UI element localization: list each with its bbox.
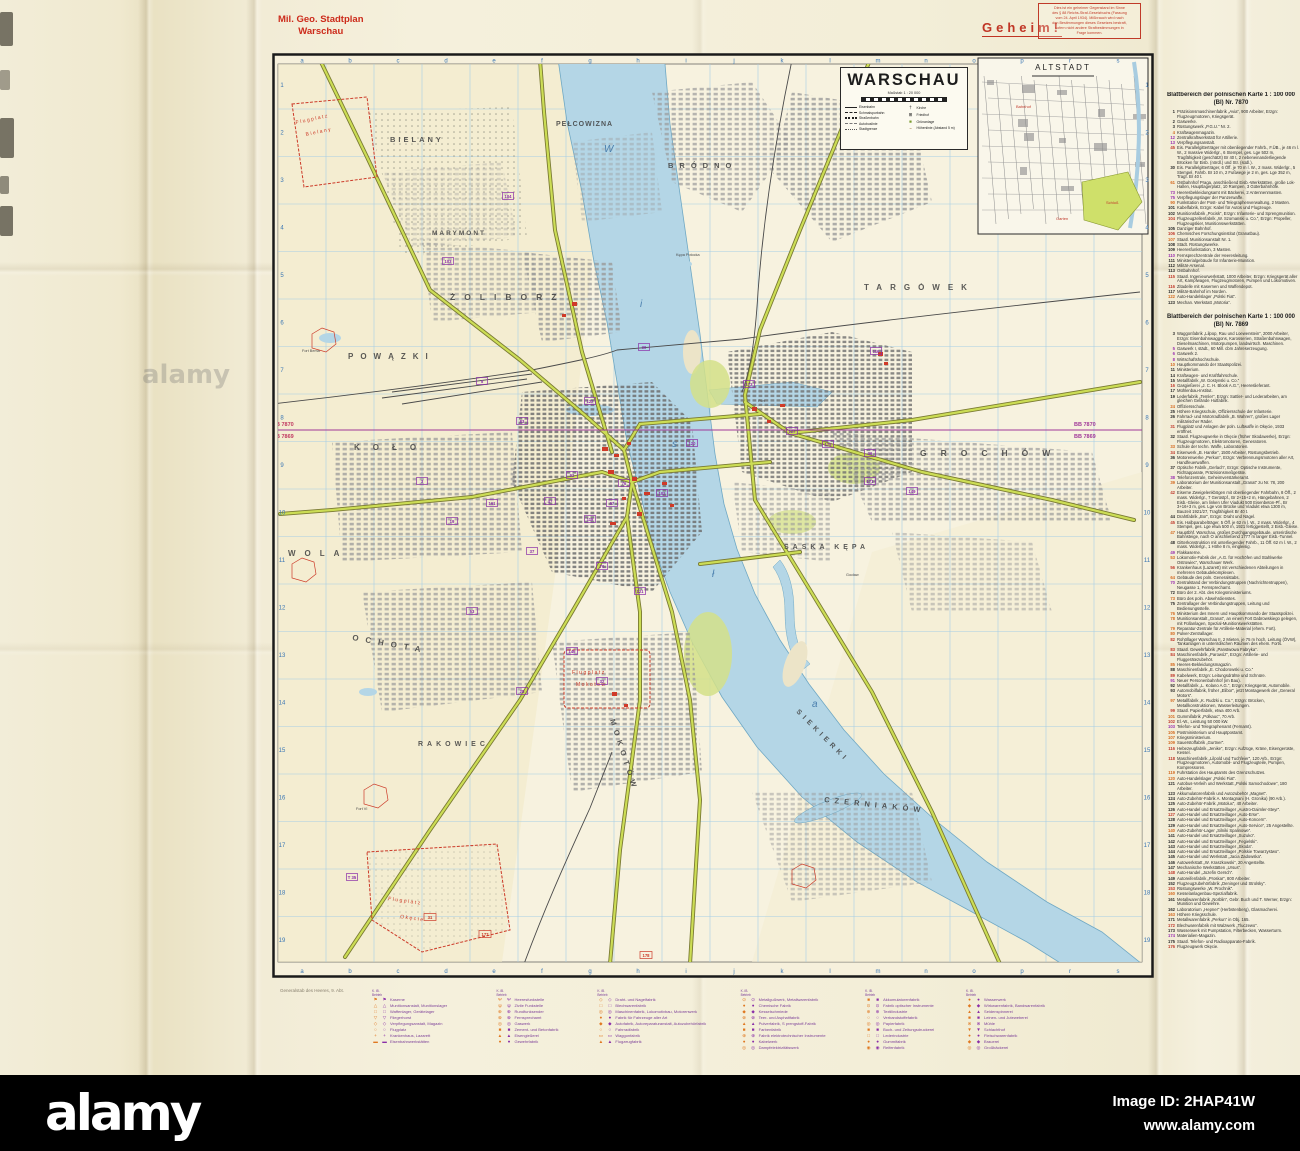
object-marker-number: 161 <box>489 501 497 506</box>
object-marker-number: 175 <box>825 442 833 447</box>
index-entry: 93Automobilfabrik, früher „Elibor“, jetz… <box>1163 689 1299 698</box>
symbol-icon-orange: ■ <box>496 1028 503 1033</box>
index-entry: 161Metallwarenfabrik „Norblin“, Gebr. Bu… <box>1163 898 1299 907</box>
symbol-legend-row: ◎◎Papierfabrik <box>865 1022 959 1027</box>
symbol-label: Lederindustrie <box>883 1034 908 1038</box>
symbol-icon-orange: ● <box>865 1040 872 1045</box>
tram-line-symbol <box>845 117 857 119</box>
svg-text:l: l <box>829 969 830 975</box>
symbol-icon-orange: ◎ <box>741 1046 748 1051</box>
svg-text:14: 14 <box>1144 701 1151 707</box>
svg-text:s: s <box>1117 59 1120 65</box>
symbol-icon-orange: ◇ <box>372 1022 379 1027</box>
symbol-icon-orange: ◎ <box>865 1022 872 1027</box>
object-marker-number: 47 <box>548 499 553 504</box>
park <box>690 360 730 408</box>
index-entry: 26Fahrrad- und Motorradfabrik „B. Wahren… <box>1163 415 1299 424</box>
index-entry-text: Mechan. Werkstatt „Motoria“. <box>1177 301 1299 306</box>
symbol-label: Gewehrfabrik <box>514 1040 538 1044</box>
symbol-legend-row: ◎◎Dampfelektrizitätswerk <box>741 1046 858 1051</box>
legend-label: Kirche <box>917 106 927 110</box>
svg-text:15: 15 <box>279 748 286 754</box>
place-label: Port <box>758 399 766 403</box>
legend-column-header: K. iB.Betrieb <box>496 990 590 997</box>
legend-label: Schmalspurbahn <box>859 111 884 115</box>
symbol-label: Munitionsanstalt, Munitionslager <box>390 1004 447 1008</box>
alamy-url[interactable]: www.alamy.com <box>1112 1118 1255 1134</box>
index-entry-number: 36 <box>1163 456 1177 465</box>
index-entry-text: Flugplatz und Anlagen der poln. Luftwaff… <box>1177 425 1299 434</box>
index-entry-number: 48 <box>1163 541 1177 550</box>
symbol-icon-purple: ⊙ <box>750 998 757 1003</box>
inset-title: ALTSTADT <box>1035 63 1091 72</box>
symbol-legend-row: ⊗⊗Teer- und Asphaltfabrik <box>741 1016 858 1021</box>
symbol-icon-purple: ⊕ <box>874 1010 881 1015</box>
object-marker-number: 32 <box>600 679 605 684</box>
object-marker-number: 97 <box>610 501 615 506</box>
legend-row: Straßenbahn <box>845 116 902 120</box>
svg-text:17: 17 <box>279 843 286 849</box>
symbol-icon-orange: ■ <box>741 1028 748 1033</box>
scanned-map-page: alamy alamy alamy alamy alamy Mil. Geo. … <box>0 0 1300 1151</box>
svg-text:10: 10 <box>279 511 286 517</box>
inset-red-label: Bahnhof <box>1016 104 1032 109</box>
index-entry: 78Munitionsanstalt „Granat“, an einem Fo… <box>1163 617 1299 626</box>
index-entry-number: 30 <box>1163 166 1177 180</box>
contour-icon: ~ <box>907 126 915 131</box>
map-frame: BIELANYPEŁCOWIZNABRÓDNOMARYMONTŻOLIBORZT… <box>272 52 1156 980</box>
symbol-icon-purple: ⚑ <box>381 998 388 1003</box>
symbol-legend-row: ◉◉Reifenfabrik <box>865 1046 959 1051</box>
symbol-icon-orange: ◆ <box>966 1040 973 1045</box>
place-label: Fort VI <box>356 807 367 811</box>
symbol-icon-orange: ⊗ <box>966 1022 973 1027</box>
symbol-icon-orange: ● <box>966 998 973 1003</box>
symbol-icon-purple: ◎ <box>874 1022 881 1027</box>
map-scale: Maßstab 1 : 20 000 <box>845 91 963 95</box>
symbol-legend-row: △△Munitionsanstalt, Munitionslager <box>372 1004 489 1009</box>
symbol-icon-orange: ■ <box>865 1028 872 1033</box>
scan-artifact <box>0 118 14 158</box>
symbol-icon-orange: ◆ <box>741 1010 748 1015</box>
symbol-legend-row: ●●Chemische Fabrik <box>741 1004 858 1009</box>
symbol-label: Schlachthof <box>984 1028 1005 1032</box>
legend-label: Eisenbahn <box>859 105 875 109</box>
mil-geo-stamp: Mil. Geo. Stadtplan Warschau <box>278 14 364 38</box>
scale-bar <box>861 97 947 102</box>
river-name-letter: a <box>812 699 818 710</box>
symbol-legend-row: ■■Zement- und Betonfabrik <box>496 1028 590 1033</box>
border-line-symbol <box>845 129 857 130</box>
symbol-legend-row: ◎◎Großbäckerei <box>966 1046 1060 1051</box>
svg-text:m: m <box>876 969 881 975</box>
symbol-label: Buch- und Zeitungsdruckerei <box>883 1028 934 1032</box>
index-entry-number: 45 <box>1163 146 1177 165</box>
object-marker-number: 83 <box>520 419 525 424</box>
legend-label: Straßenbahn <box>859 116 879 120</box>
symbol-icon-orange: ◇ <box>597 998 604 1003</box>
svg-text:g: g <box>588 59 591 65</box>
symbol-icon-purple: ⊗ <box>505 1016 512 1021</box>
scan-artifact <box>0 206 13 236</box>
svg-text:12: 12 <box>1144 606 1151 612</box>
legend-row: ■Grünanlage <box>907 119 964 124</box>
district-label: TARGÓWEK <box>864 283 975 292</box>
index-entry-text: Waggonfabrik „Lilpop, Rau und Loewenstei… <box>1177 332 1299 346</box>
index-entry-text: Eis. Halbparabelträger, 5 Öff. je 62 m l… <box>1177 521 1299 530</box>
symbol-legend-row: ■■Farbenfabrik <box>741 1028 858 1033</box>
stamp-line2: Warschau <box>278 26 364 38</box>
index-entry-text: Motorenwerke „Perkun“, Erzgn: Verbrennun… <box>1177 456 1299 465</box>
symbol-icon-orange: + <box>372 1034 379 1039</box>
index-section-header: Blattbereich der polnischen Karte 1 : 10… <box>1163 92 1299 107</box>
index-entry: 56Krankenhaus (Lazarett) mit verschieden… <box>1163 566 1299 575</box>
symbol-legend-row: ○○Fahrradfabrik <box>597 1028 733 1033</box>
scan-artifact <box>0 12 13 46</box>
symbol-label: Verbandstoffefabrik <box>883 1016 917 1020</box>
index-entry: 118Maschinenfabrik „Lilpold und Tuchfeie… <box>1163 757 1299 771</box>
object-marker-number: 146 <box>569 649 577 654</box>
symbol-legend-row: ▲▲Flugzeugfabrik <box>597 1040 733 1045</box>
symbol-icon-purple: ◎ <box>505 1022 512 1027</box>
legend-column-header: K. iB.Betrieb <box>966 990 1060 997</box>
object-marker-number: 116 <box>873 349 880 354</box>
legend-row: ~Höhenlinie (Abstand 5 m) <box>907 126 964 131</box>
symbol-label: Fabrik optischer Instrumente <box>883 1004 934 1008</box>
stamp-line1: Mil. Geo. Stadtplan <box>278 14 364 26</box>
symbol-legend-row: ●●Fabrik für Fahrzeuge aller Art <box>597 1016 733 1021</box>
fold-crease <box>138 0 154 1075</box>
symbol-label: Fernsprechamt <box>514 1016 541 1020</box>
symbol-icon-purple: ψ <box>505 1004 512 1009</box>
svg-text:18: 18 <box>279 891 286 897</box>
symbol-icon-orange: ◎ <box>597 1010 604 1015</box>
river-name-letter: W <box>604 144 615 155</box>
index-entry: 48Gitterkonstruktion mit unterliegender … <box>1163 541 1299 550</box>
symbol-label: Fliegerhorst <box>390 1016 411 1020</box>
symbol-icon-purple: ▲ <box>606 1040 613 1045</box>
object-marker-number: 120 <box>689 441 697 446</box>
index-entry: 115Staatl. Ingenieurwerkstatt, 1000 Arbe… <box>1163 275 1299 284</box>
symbol-icon-orange: ● <box>597 1016 604 1021</box>
district-label: MARYMONT <box>432 230 486 237</box>
symbol-label: Gaswerk <box>514 1022 530 1026</box>
symbol-icon-purple: ● <box>750 1004 757 1009</box>
index-entry-text: Optische Fabrik „Gerlach“, Erzgn: Optisc… <box>1177 466 1299 475</box>
index-entry-text: Rohöllager Warschau II, 2 Mieten, je 75 … <box>1177 638 1299 647</box>
symbol-icon-purple: ○ <box>381 1028 388 1033</box>
urban-marymont <box>422 242 542 322</box>
symbol-icon-purple: Ψ <box>505 998 512 1003</box>
svg-text:g: g <box>588 969 591 975</box>
symbol-label: Kabelwerk <box>759 1040 778 1044</box>
symbol-label: Pulverfabrik, S prengstoff-Fabrik <box>759 1022 816 1026</box>
symbol-icon-purple: ◆ <box>750 1010 757 1015</box>
symbol-legend-row: ■■Buch- und Zeitungsdruckerei <box>865 1028 959 1033</box>
sheet-number-label: BB 7870 <box>1074 422 1096 428</box>
index-entry-text: Metallwarenfabrik „Norblin“, Gebr. Buch … <box>1177 898 1299 907</box>
index-entry-number: 26 <box>1163 415 1177 424</box>
index-entry-number: 82 <box>1163 638 1177 647</box>
symbol-legend-column: K. iB.BetriebΨΨHeeresfunkstelleψψZivile … <box>496 990 590 1052</box>
svg-text:16: 16 <box>279 796 286 802</box>
index-entry: 82Rohöllager Warschau II, 2 Mieten, je 7… <box>1163 638 1299 647</box>
index-entry-number: 42 <box>1163 491 1177 515</box>
city-map: BIELANYPEŁCOWIZNABRÓDNOMARYMONTŻOLIBORZT… <box>272 52 1156 980</box>
index-entry-number: 37 <box>1163 466 1177 475</box>
symbol-icon-orange: □ <box>865 1034 872 1039</box>
symbol-legend-row: ○○Verbandstoffefabrik <box>865 1016 959 1021</box>
index-entry-number: 47 <box>1163 531 1177 540</box>
index-entry-number: 32 <box>1163 435 1177 444</box>
symbol-legend-row: ▽▽Fliegerhorst <box>372 1016 489 1021</box>
index-entry-text: Hebezeugfabrik „Jenike“, Erzgn: Aufzüge,… <box>1177 747 1299 756</box>
svg-text:15: 15 <box>1144 748 1151 754</box>
district-label: BIELANY <box>390 135 444 144</box>
object-marker-number: 104 <box>505 194 513 199</box>
symbol-icon-orange: ⊙ <box>741 998 748 1003</box>
symbol-icon-purple: ⊕ <box>505 1010 512 1015</box>
index-entry-text: Staatl. Flugzeugwerke in Okęcie (früher … <box>1177 435 1299 444</box>
svg-text:18: 18 <box>1144 891 1151 897</box>
svg-text:d: d <box>444 59 447 65</box>
district-label: POWĄZKI <box>348 352 435 361</box>
legend-label: Höhenlinie (Abstand 5 m) <box>917 126 955 130</box>
index-entry-number: 97 <box>1163 699 1177 708</box>
symbol-icon-orange: ◆ <box>597 1022 604 1027</box>
svg-text:19: 19 <box>1144 938 1151 944</box>
airfield-label: Flugplatz <box>572 670 606 676</box>
object-marker-number: 70 <box>600 564 605 569</box>
svg-text:i: i <box>685 969 686 975</box>
symbol-icon-purple: △ <box>381 1004 388 1009</box>
index-entry-number: 1 <box>1163 110 1177 119</box>
symbol-legend-row: ΨΨHeeresfunkstelle <box>496 998 590 1003</box>
index-entry-text: Flugzeugwerk Okęcie. <box>1177 945 1299 950</box>
index-entry-text: Hauptbhf. Warschau, großes Durchgangsgeb… <box>1177 531 1299 540</box>
symbol-icon-orange: ▬ <box>372 1040 379 1045</box>
place-label: Fort Bema <box>302 349 321 353</box>
symbol-label: Teer- und Asphaltfabrik <box>759 1016 800 1020</box>
symbol-icon-orange: ⊙ <box>865 1004 872 1009</box>
object-marker-number: 171 <box>867 479 875 484</box>
svg-text:s: s <box>1117 969 1120 975</box>
district-label: WOLA <box>288 549 348 558</box>
index-entry-text: Flugzeugzellenfabrik „W. Szomanski u. Co… <box>1177 217 1299 226</box>
symbol-icon-purple: ■ <box>505 1028 512 1033</box>
symbol-icon-orange: ψ <box>496 1004 503 1009</box>
svg-text:i: i <box>685 59 686 65</box>
legend-column-header: K. iB.Betrieb <box>372 990 489 997</box>
symbol-legend-row: □□Lederindustrie <box>865 1034 959 1039</box>
symbol-legend-row: ◆◆Brauerei <box>966 1040 1060 1045</box>
symbol-legend-row: ◆◆Kesselschmiede <box>741 1010 858 1015</box>
symbol-icon-purple: ■ <box>874 998 881 1003</box>
index-entry: 47Hauptbhf. Warschau, großes Durchgangsg… <box>1163 531 1299 540</box>
svg-text:13: 13 <box>1144 653 1151 659</box>
index-entry-text: Ostbahnhof Praga, anschließend Eisb.-Wer… <box>1177 181 1299 190</box>
symbol-icon-purple: ■ <box>874 1028 881 1033</box>
narrow-line-symbol <box>845 112 857 113</box>
object-marker-number: 127 <box>789 429 797 434</box>
index-entry-number: 118 <box>1163 757 1177 771</box>
title-legend-left: EisenbahnSchmalspurbahnStraßenbahnAutobu… <box>845 105 902 133</box>
symbol-icon-purple: + <box>381 1034 388 1039</box>
symbol-icon-purple: ◎ <box>975 1046 982 1051</box>
symbol-icon-orange: ▲ <box>741 1022 748 1027</box>
symbol-icon-purple: □ <box>381 1010 388 1015</box>
inset-red-label: Schloß <box>1106 200 1119 205</box>
svg-text:13: 13 <box>279 653 286 659</box>
district-label: ŻOLIBORZ <box>450 292 565 302</box>
symbol-label: Chemische Fabrik <box>759 1004 791 1008</box>
object-marker-number: 121 <box>637 589 645 594</box>
symbol-legend: K. iB.Betrieb⚑⚑Kaserne△△Munitionsanstalt… <box>372 990 1060 1052</box>
symbol-icon-orange: ■ <box>966 1016 973 1021</box>
index-entry-text: Eis. Parallelgitterträger, 6 Öff. je 70 … <box>1177 166 1299 180</box>
index-entry: 42Eiserne Zweigelenkbögen mit obenliegen… <box>1163 491 1299 515</box>
district-label: BRÓDNO <box>668 161 737 170</box>
symbol-label: Seidenspinnerei <box>984 1010 1013 1014</box>
symbol-label: Wirkwarenfabrik, Bandwarenfabrik <box>984 1004 1045 1008</box>
symbol-label: Maschinenfabrik, Lokomotivbau, Motorenwe… <box>615 1010 697 1014</box>
object-marker-number: 53 <box>470 609 475 614</box>
symbol-label: Gummifabrik <box>883 1040 906 1044</box>
symbol-icon-purple: ● <box>606 1016 613 1021</box>
svg-text:d: d <box>444 969 447 975</box>
scan-artifact <box>0 176 9 194</box>
index-section-header: Blattbereich der polnischen Karte 1 : 10… <box>1163 314 1299 329</box>
legend-row: Autobuslinie <box>845 122 902 126</box>
index-entry: 30Eis. Parallelgitterträger, 6 Öff. je 7… <box>1163 166 1299 180</box>
index-entry-number: 176 <box>1163 945 1177 950</box>
symbol-legend-row: ◎◎Gaswerk <box>496 1022 590 1027</box>
symbol-legend-row: □□Blechwarenfabrik <box>597 1004 733 1009</box>
symbol-label: Waffenlager, Gerätelager <box>390 1010 434 1014</box>
symbol-label: Kaserne <box>390 998 405 1002</box>
index-entry-text: Fahrrad- und Motorradfabrik „B. Wahren“,… <box>1177 415 1299 424</box>
symbol-icon-purple: ● <box>750 1040 757 1045</box>
altstadt-inset: ALTSTADT SchloßGartenBahnhof <box>978 58 1148 234</box>
symbol-label: Textilindustrie <box>883 1010 907 1014</box>
symbol-legend-row: ●●Gummifabrik <box>865 1040 959 1045</box>
symbol-icon-purple: ○ <box>874 1016 881 1021</box>
symbol-icon-purple: ◆ <box>975 1004 982 1009</box>
symbol-icon-orange: ○ <box>372 1028 379 1033</box>
legend-label: Autobuslinie <box>859 122 877 126</box>
index-entry-number: 19 <box>1163 395 1177 404</box>
symbol-icon-orange: ● <box>966 1034 973 1039</box>
symbol-label: Rundfunksender <box>514 1010 543 1014</box>
symbol-label: Fahrradfabrik <box>615 1028 639 1032</box>
index-entry-number: 75 <box>1163 602 1177 611</box>
object-marker-number: 102 <box>659 491 667 496</box>
symbol-legend-row: ⊗⊗Mühle <box>966 1022 1060 1027</box>
urban-goclawek <box>892 532 1052 612</box>
index-entry-text: Automobilfabrik, früher „Elibor“, jetzt … <box>1177 689 1299 698</box>
legend-row: Schmalspurbahn <box>845 111 902 115</box>
red-object-number: 31 <box>428 915 433 920</box>
symbol-icon-orange: ◆ <box>966 1004 973 1009</box>
svg-text:12: 12 <box>279 606 286 612</box>
symbol-label: Fabrik elektrotechnischer Instrumente <box>759 1034 826 1038</box>
symbol-legend-row: ⊙⊙Metallgußwerk, Metallwarenfabrik <box>741 998 858 1003</box>
index-entry: 31Flugplatz und Anlagen der poln. Luftwa… <box>1163 425 1299 434</box>
symbol-label: Verpflegungsanstalt, Magazin <box>390 1022 442 1026</box>
index-entry: 37Optische Fabrik „Gerlach“, Erzgn: Opti… <box>1163 466 1299 475</box>
symbol-icon-orange: ▲ <box>597 1040 604 1045</box>
symbol-legend-column: K. iB.Betrieb◇◇Draht- und Nagelfabrik□□B… <box>597 990 733 1052</box>
rail-line-symbol <box>845 107 857 108</box>
symbol-icon-purple: ◆ <box>975 1040 982 1045</box>
red-object-number: 177 <box>482 932 490 937</box>
index-entry-number: 39 <box>1163 481 1177 490</box>
object-marker-number: 92 <box>570 473 575 478</box>
svg-text:h: h <box>636 969 639 975</box>
symbol-legend-row: ⊗⊗Fernsprechamt <box>496 1016 590 1021</box>
symbol-label: Autofabrik, Autoreparaturanstalt, Autozu… <box>615 1022 706 1026</box>
svg-text:14: 14 <box>279 701 286 707</box>
map-title: WARSCHAU <box>845 71 963 90</box>
index-entry: 45Eis. Parallelgitterträger mit obenlieg… <box>1163 146 1299 165</box>
district-label: PEŁCOWIZNA <box>556 121 613 128</box>
district-label: SASKA KĘPA <box>784 544 869 551</box>
symbol-label: Draht- und Nagelfabrik <box>615 998 655 1002</box>
symbol-icon-purple: □ <box>606 1004 613 1009</box>
index-entry: 1Präzisionsmaschinenfabrik „Avia“, 900 A… <box>1163 110 1299 119</box>
svg-text:m: m <box>876 59 881 65</box>
symbol-label: Zivile Funkstelle <box>514 1004 543 1008</box>
legend-label: Friedhof <box>917 113 929 117</box>
symbol-icon-orange: ● <box>741 1040 748 1045</box>
svg-text:16: 16 <box>1144 796 1151 802</box>
index-entry: 70Zentralstand der Verbindungstruppen (N… <box>1163 581 1299 590</box>
district-label: GROCHÓW <box>920 447 1064 458</box>
index-entry-text: Eis. Parallelgitterträger mit obenliegen… <box>1177 146 1299 165</box>
index-entry-number: 123 <box>1163 301 1177 306</box>
imprint: Generalstab des Heeres, 9. Abt. <box>280 988 344 993</box>
symbol-icon-orange: ▲ <box>496 1034 503 1039</box>
symbol-legend-row: ⊕⊕Rundfunksender <box>496 1010 590 1015</box>
pond <box>660 259 692 269</box>
index-entry-text: Krankenhaus (Lazarett) mit verschiedenen… <box>1177 566 1299 575</box>
symbol-label: Fabrik für Fahrzeuge aller Art <box>615 1016 667 1020</box>
index-entry: 45Eis. Halbparabelträger, 5 Öff. je 62 m… <box>1163 521 1299 530</box>
symbol-legend-column: K. iB.Betrieb⚑⚑Kaserne△△Munitionsanstalt… <box>372 990 489 1052</box>
svg-text:j: j <box>732 59 734 65</box>
pond <box>319 333 341 343</box>
index-entry: 176Flugzeugwerk Okęcie. <box>1163 945 1299 950</box>
symbol-icon-orange: ● <box>741 1004 748 1009</box>
symbol-icon-purple: ● <box>975 998 982 1003</box>
symbol-legend-row: ⊙⊙Fabrik optischer Instrumente <box>865 1004 959 1009</box>
index-entry-number: 121 <box>1163 782 1177 791</box>
index-entry: 97Metallfabrik „K. Rudzki u. Co.“, Erzgn… <box>1163 699 1299 708</box>
symbol-icon-purple: □ <box>874 1034 881 1039</box>
index-entry: 53Lokomotiv-Fabrik der „A.G. für Hochöfe… <box>1163 556 1299 565</box>
symbol-label: Eisenbahnwerkstätten <box>390 1040 429 1044</box>
symbol-label: Dampfelektrizitätswerk <box>759 1046 799 1050</box>
symbol-legend-row: □□Waffenlager, Gerätelager <box>372 1010 489 1015</box>
symbol-legend-row: ◎◎Maschinenfabrik, Lokomotivbau, Motoren… <box>597 1010 733 1015</box>
index-entry-text: Munitionsanstalt „Granat“, an einem Fort… <box>1177 617 1299 626</box>
bus-line-symbol <box>845 123 857 124</box>
svg-text:n: n <box>924 59 927 65</box>
symbol-icon-purple: ⊗ <box>975 1022 982 1027</box>
object-index-panel: Blattbereich der polnischen Karte 1 : 10… <box>1163 92 1299 1067</box>
index-entry-text: Lokomotiv-Fabrik der „A.G. für Hochöfen … <box>1177 556 1299 565</box>
symbol-label: Blechwarenfabrik <box>615 1004 646 1008</box>
